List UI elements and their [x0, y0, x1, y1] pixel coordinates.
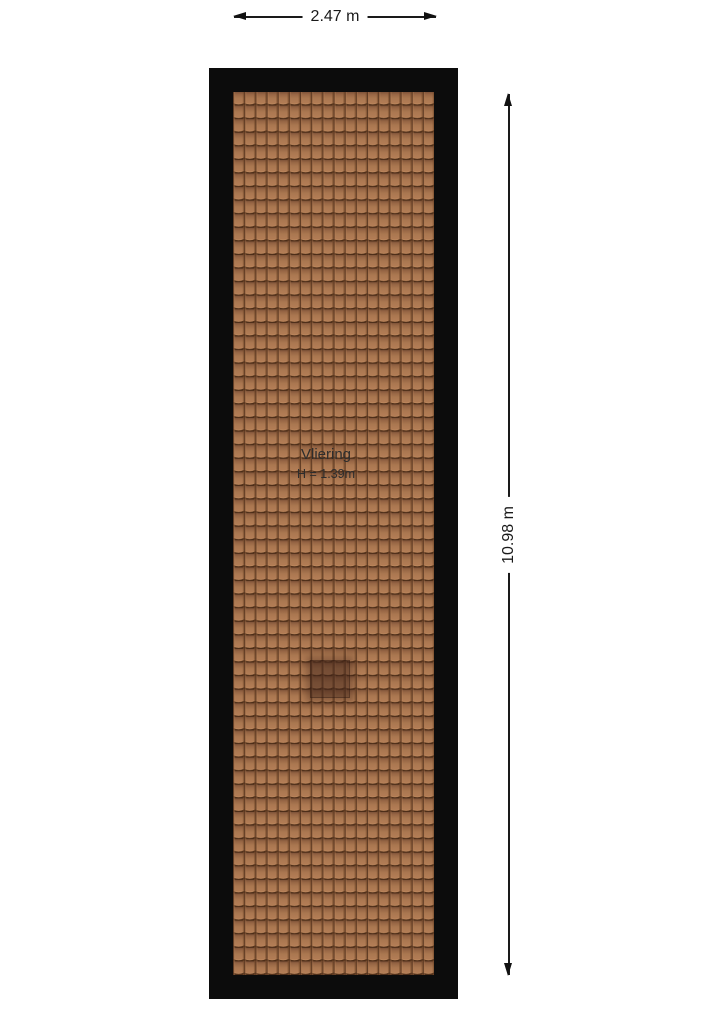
room-vliering: Vliering H = 1.39m [209, 68, 458, 999]
height-dimension: 10.98 m [500, 93, 518, 976]
arrowhead-up-icon [504, 93, 512, 106]
width-dimension-label: 2.47 m [303, 8, 368, 26]
height-dimension-label: 10.98 m [500, 497, 518, 573]
arrowhead-left-icon [233, 12, 246, 20]
room-height-label: H = 1.39m [209, 466, 443, 482]
roof-window [310, 660, 350, 698]
room-label: Vliering H = 1.39m [209, 446, 443, 482]
roof-tiles [233, 92, 434, 975]
roof-tiles-pattern [233, 92, 434, 975]
arrowhead-right-icon [424, 12, 437, 20]
arrowhead-down-icon [504, 963, 512, 976]
floorplan-canvas: 2.47 m 10.98 m [0, 0, 720, 1017]
room-name-label: Vliering [209, 446, 443, 464]
width-dimension: 2.47 m [233, 8, 437, 26]
